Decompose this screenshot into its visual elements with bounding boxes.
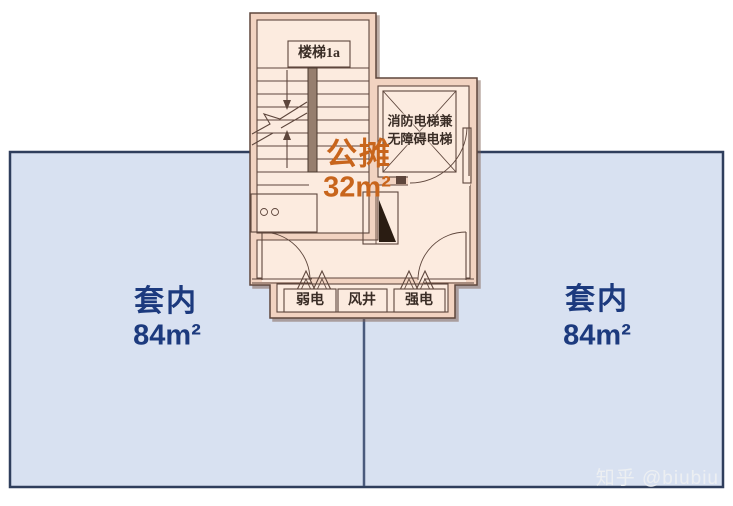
common-area-name: 公摊 <box>326 139 392 170</box>
elevator-label-line2: 无障碍电梯 <box>387 133 452 146</box>
stairwell-label: 楼梯1a <box>298 47 340 61</box>
air-shaft-label: 风井 <box>348 294 376 308</box>
elevator-label-line1: 消防电梯兼 <box>387 115 452 128</box>
right-unit-name: 套内 <box>565 285 629 315</box>
weak-power-label: 弱电 <box>296 294 324 308</box>
common-area-value: 32m² <box>323 174 391 203</box>
elevator-door-jamb <box>396 176 406 184</box>
stair-handrail <box>308 68 317 172</box>
left-unit-value: 84m² <box>133 322 201 351</box>
floor-plan-page: 楼梯1a 消防电梯兼 无障碍电梯 公摊 32m² 套内 84m² 套内 84m²… <box>0 0 733 506</box>
elevator-door-opening <box>408 176 470 186</box>
right-unit-value: 84m² <box>563 322 631 351</box>
left-unit-name: 套内 <box>134 287 198 317</box>
right-door-opening <box>418 274 466 282</box>
watermark: 知乎 @biubiu <box>596 463 719 490</box>
strong-power-label: 强电 <box>405 294 433 308</box>
floor-plan-drawing <box>0 0 733 506</box>
